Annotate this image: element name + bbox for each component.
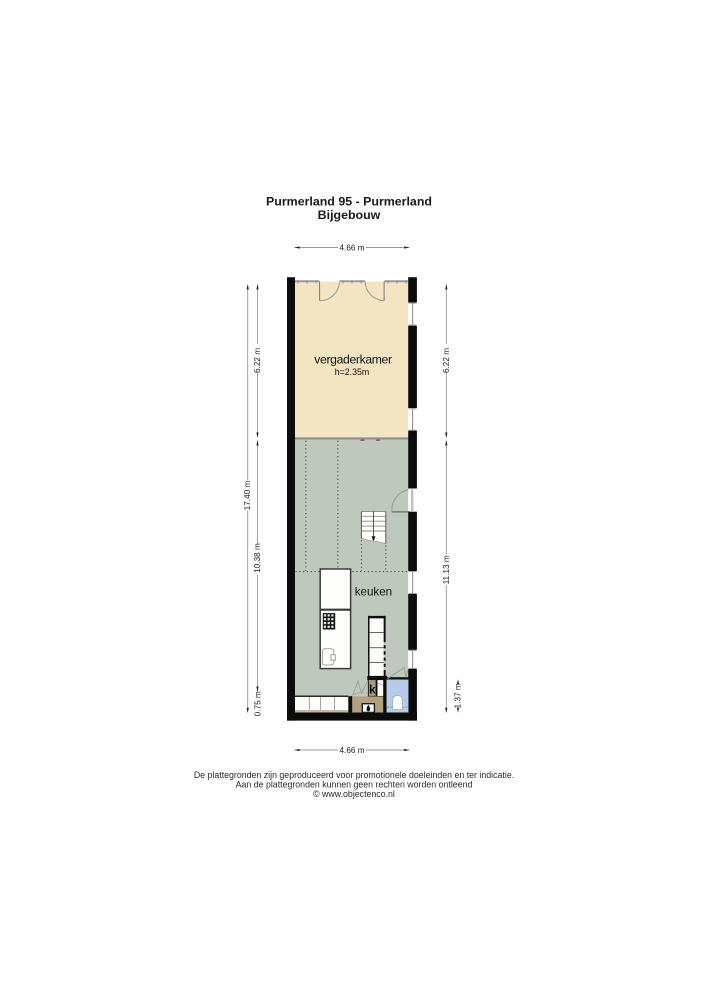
svg-text:vergaderkamer: vergaderkamer (314, 352, 392, 366)
svg-text:4.66 m: 4.66 m (339, 243, 364, 252)
svg-text:© www.objectenco.nl: © www.objectenco.nl (313, 789, 395, 799)
svg-text:0.75 m: 0.75 m (254, 691, 263, 716)
svg-text:11.13 m: 11.13 m (442, 555, 451, 584)
svg-text:4.66 m: 4.66 m (339, 746, 364, 755)
svg-text:Bijgebouw: Bijgebouw (318, 208, 381, 222)
svg-text:h=2.35m: h=2.35m (335, 367, 369, 377)
svg-text:17.40 m: 17.40 m (243, 481, 252, 511)
svg-text:10.38 m: 10.38 m (253, 543, 262, 573)
svg-text:Purmerland 95 - Purmerland: Purmerland 95 - Purmerland (266, 194, 432, 208)
svg-text:6.22 m: 6.22 m (442, 348, 451, 373)
svg-text:De plattegronden zijn geproduc: De plattegronden zijn geproduceerd voor … (194, 770, 514, 780)
svg-text:6.22 m: 6.22 m (253, 348, 262, 373)
svg-text:Aan de plattegronden kunnen ge: Aan de plattegronden kunnen geen rechten… (236, 780, 473, 790)
svg-text:1.37 m: 1.37 m (454, 683, 463, 708)
svg-text:k: k (369, 683, 376, 697)
svg-text:keuken: keuken (355, 585, 392, 598)
